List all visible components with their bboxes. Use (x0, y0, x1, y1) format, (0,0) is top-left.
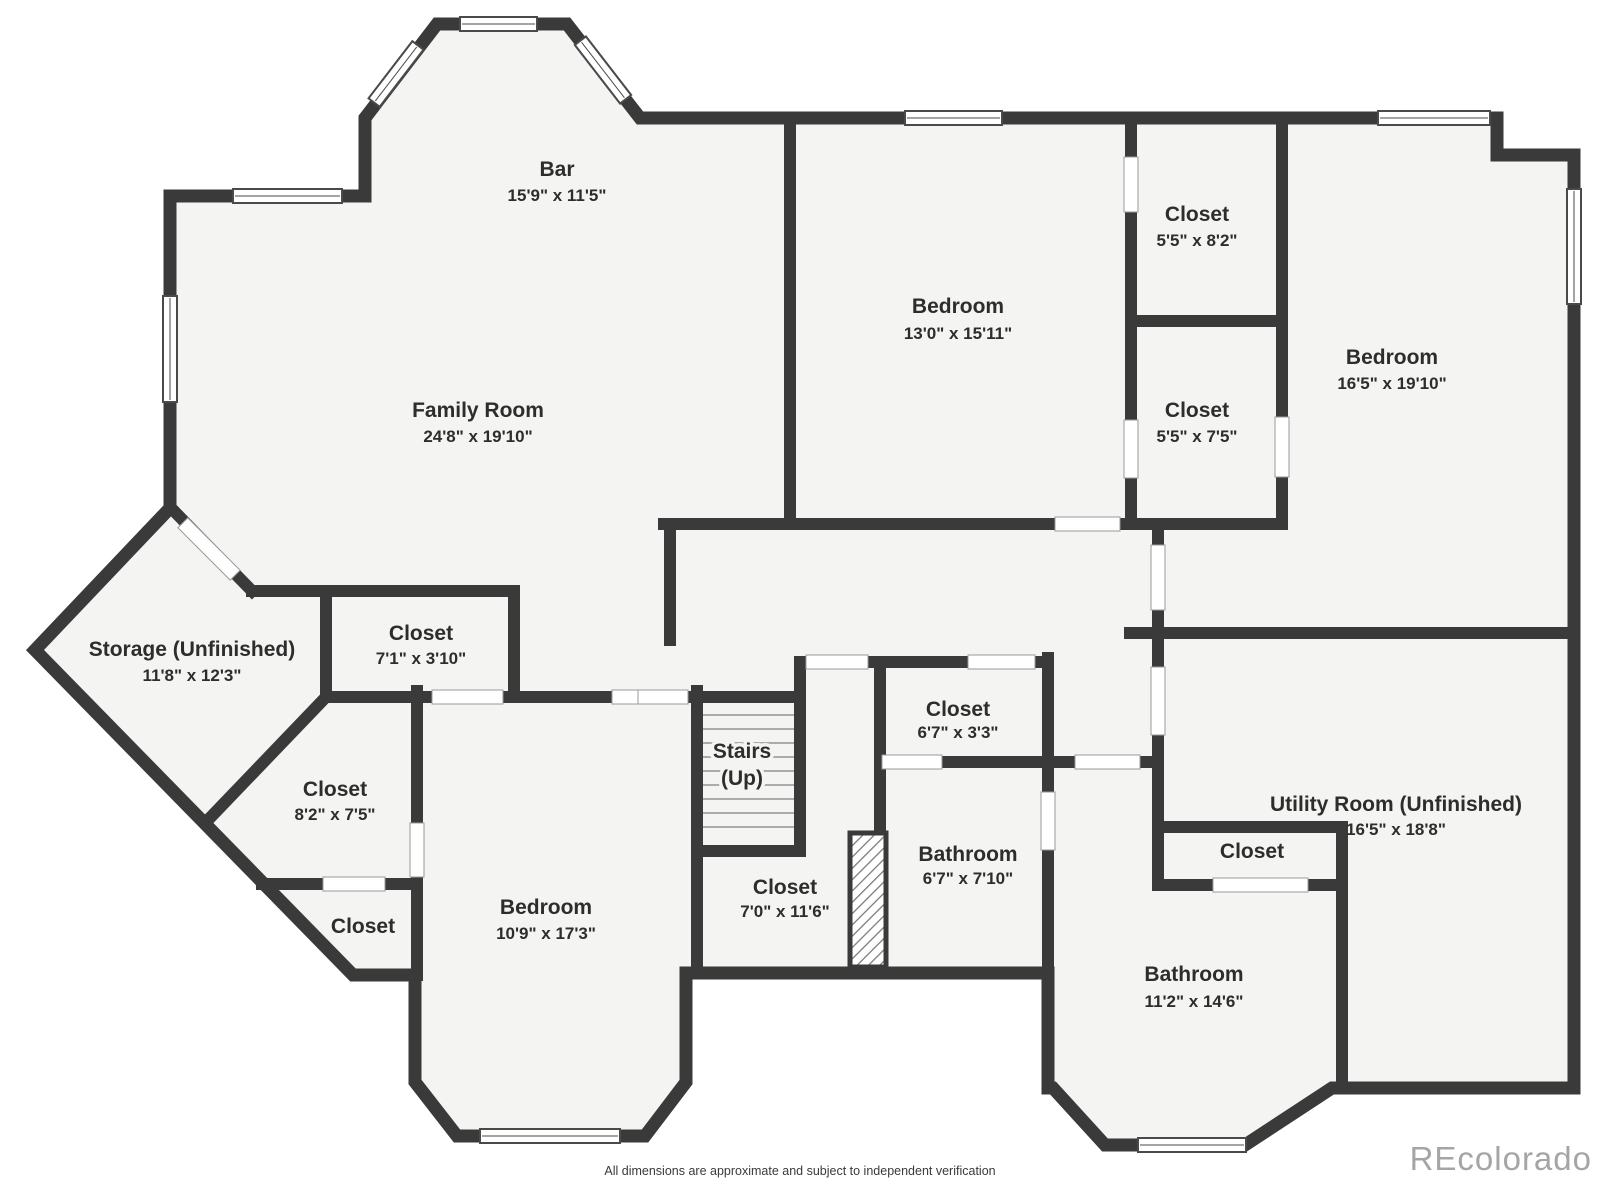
room-dims-bedroom-lower: 10'9" x 17'3" (496, 924, 596, 943)
window-icon (1378, 111, 1490, 125)
window-icon (460, 17, 537, 31)
window-icon (1138, 1138, 1246, 1152)
window-icon (163, 296, 177, 402)
room-label-bedroom-lower: Bedroom (500, 896, 592, 919)
room-label-bathroom-67: Bathroom (918, 843, 1017, 866)
room-dims-closet-top-2: 5'5" x 7'5" (1157, 427, 1238, 446)
room-label-family-room: Family Room (412, 399, 544, 422)
room-dims-closet-71: 7'1" x 3'10" (376, 649, 466, 668)
window-icon (1567, 189, 1581, 304)
room-label-closet-70: Closet (753, 876, 817, 899)
room-dims-family-room: 24'8" x 19'10" (423, 427, 532, 446)
room-label-closet-small: Closet (331, 915, 395, 938)
room-label-bar: Bar (539, 158, 574, 181)
room-dims-bathroom-112: 11'2" x 14'6" (1145, 992, 1244, 1011)
room-label-closet-67: Closet (926, 698, 990, 721)
watermark: REcolorado (1410, 1140, 1592, 1177)
room-label-storage: Storage (Unfinished) (89, 638, 296, 661)
room-dims-bedroom-middle: 13'0" x 15'11" (904, 324, 1012, 343)
stairs-up-label: (Up) (721, 767, 763, 790)
room-dims-closet-70: 7'0" x 11'6" (740, 902, 829, 921)
room-dims-closet-82: 8'2" x 7'5" (295, 805, 376, 824)
room-label-bedroom-middle: Bedroom (912, 295, 1004, 318)
room-dims-closet-top-1: 5'5" x 8'2" (1157, 231, 1238, 250)
room-label-closet-utility: Closet (1220, 840, 1284, 863)
room-label-utility: Utility Room (Unfinished) (1270, 793, 1522, 816)
footer-disclaimer: All dimensions are approximate and subje… (604, 1164, 995, 1178)
room-label-bedroom-right: Bedroom (1346, 346, 1438, 369)
room-dims-bedroom-right: 16'5" x 19'10" (1337, 374, 1446, 393)
room-dims-utility: 16'5" x 18'8" (1346, 820, 1446, 839)
floor-plan-svg: Bar 15'9" x 11'5" Family Room 24'8" x 19… (0, 0, 1600, 1180)
room-label-closet-top-2: Closet (1165, 399, 1229, 422)
floor-plan-page: Bar 15'9" x 11'5" Family Room 24'8" x 19… (0, 0, 1600, 1180)
window-icon (905, 111, 1002, 125)
room-dims-bathroom-67: 6'7" x 7'10" (923, 869, 1013, 888)
room-dims-storage: 11'8" x 12'3" (143, 666, 242, 685)
stairs-label: Stairs (713, 740, 771, 763)
room-dims-bar: 15'9" x 11'5" (508, 186, 607, 205)
room-label-bathroom-112: Bathroom (1144, 963, 1243, 986)
room-label-closet-71: Closet (389, 622, 453, 645)
room-dims-closet-67: 6'7" x 3'3" (918, 723, 999, 742)
window-icon (480, 1129, 620, 1143)
window-icon (233, 189, 342, 203)
hatched-chase (850, 833, 886, 967)
room-label-closet-82: Closet (303, 778, 367, 801)
room-label-closet-top-1: Closet (1165, 203, 1229, 226)
